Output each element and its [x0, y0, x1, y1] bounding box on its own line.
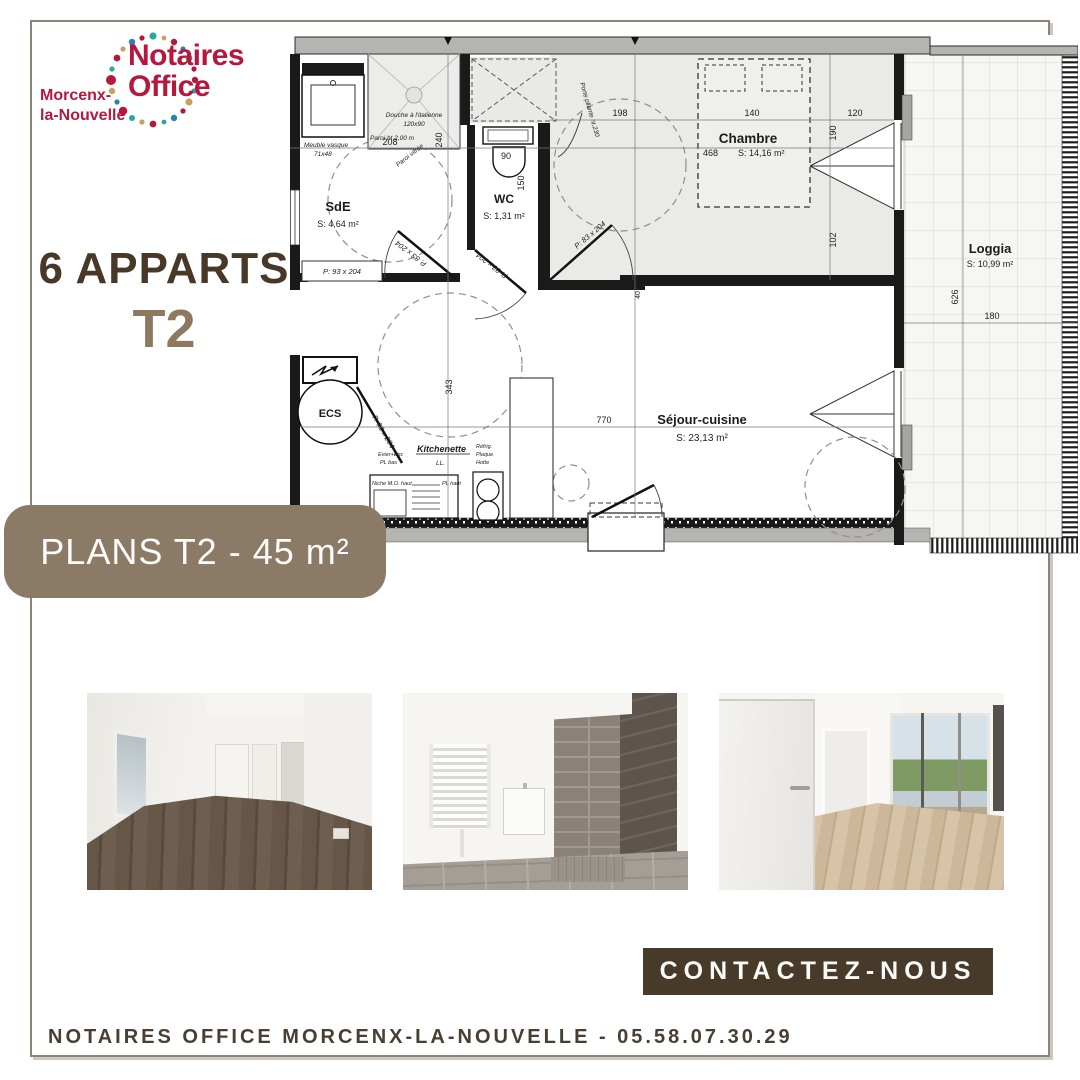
niche-label: Niche M.O. haut [372, 481, 412, 487]
dim-140: 140 [744, 108, 759, 118]
dim-150: 150 [516, 175, 526, 190]
electrical-outlet [333, 828, 349, 839]
hotte-label: Hotte [476, 460, 489, 466]
brand-line2: Office [128, 71, 244, 102]
plaque-label: Plaque [476, 452, 493, 458]
evier-label: Evier+Egc [378, 452, 403, 458]
vasque-dim-label: 71x48 [314, 151, 332, 158]
towel-radiator [429, 744, 491, 829]
flyer-canvas: Notaires Office Morcenx- la-Nouvelle 6 A… [0, 0, 1080, 1080]
sejour-area: S: 23,13 m² [676, 433, 728, 444]
dim-208: 208 [382, 137, 397, 147]
location-line1: Morcenx- [40, 86, 125, 106]
footer-contact-line: NOTAIRES OFFICE MORCENX-LA-NOUVELLE - 05… [48, 1026, 793, 1049]
brand-line1: Notaires [128, 40, 244, 71]
vanity-cabinet [503, 788, 545, 835]
tiled-floor [403, 851, 688, 890]
dim-198: 198 [612, 108, 627, 118]
dim-343: 343 [444, 379, 454, 394]
loggia-name: Loggia [969, 241, 1012, 256]
location-line2: la-Nouvelle [40, 106, 125, 126]
kitchenette-label: Kitchenette [417, 444, 466, 454]
douche-dim-label: 120x90 [403, 121, 425, 128]
dim-190: 190 [828, 125, 838, 140]
brand-name: Notaires Office [128, 40, 244, 102]
pl-haut-label: PL haut [442, 481, 461, 487]
pl-bas-label: PL bas [380, 460, 397, 466]
notaires-office-logo: Notaires Office Morcenx- la-Nouvelle [38, 30, 288, 155]
office-location: Morcenx- la-Nouvelle [40, 86, 125, 126]
contact-button[interactable]: CONTACTEZ-NOUS [643, 948, 993, 995]
sde-door-box-label: P: 93 x 204 [323, 267, 361, 276]
dim-90: 90 [501, 151, 511, 161]
radiator-pipe [460, 829, 464, 857]
sde-area: S: 4,64 m² [317, 219, 359, 229]
photo-empty-room [87, 693, 372, 890]
door-handle [790, 786, 810, 790]
douche-label: Douche à l'italienne [386, 112, 443, 119]
dim-626: 626 [950, 289, 960, 304]
headline: 6 APPARTS T2 [38, 244, 290, 360]
chambre-area: S: 14,16 m² [738, 148, 785, 158]
shower-floor [551, 857, 625, 883]
room-loggia: Loggia S: 10,99 m² [967, 241, 1014, 269]
chambre-name: Chambre [719, 131, 778, 146]
wc-area: S: 1,31 m² [483, 211, 525, 221]
dim-468: 468 [703, 148, 718, 158]
window-frame [958, 713, 961, 827]
shower-back-wall [554, 713, 625, 871]
loggia-area: S: 10,99 m² [967, 259, 1014, 269]
headline-count: 6 APPARTS [38, 244, 290, 294]
wc-name: WC [494, 192, 514, 206]
sde-name: SdE [325, 199, 351, 214]
dim-180: 180 [984, 311, 999, 321]
dim-120: 120 [847, 108, 862, 118]
dark-wall-edge [993, 705, 1004, 811]
floorplan: Douche à l'italienne 120x90 Meuble vasqu… [290, 35, 1078, 565]
sejour-name: Séjour-cuisine [657, 412, 747, 427]
foreground-door [719, 699, 815, 890]
ecs-label: ECS [319, 408, 342, 420]
dim-770: 770 [596, 415, 611, 425]
dim-40: 40 [635, 291, 642, 299]
refrig-label: Réfrig. [476, 444, 492, 450]
contact-button-label: CONTACTEZ-NOUS [660, 957, 977, 986]
plans-banner-label: PLANS T2 - 45 m² [40, 531, 349, 573]
photo-living-room [719, 693, 1004, 890]
photo-bathroom [403, 693, 688, 890]
lave-linge-label: LL. [436, 460, 445, 467]
headline-type: T2 [38, 298, 290, 360]
dim-240: 240 [434, 132, 444, 147]
dim-102: 102 [828, 232, 838, 247]
plans-banner: PLANS T2 - 45 m² [4, 505, 386, 598]
